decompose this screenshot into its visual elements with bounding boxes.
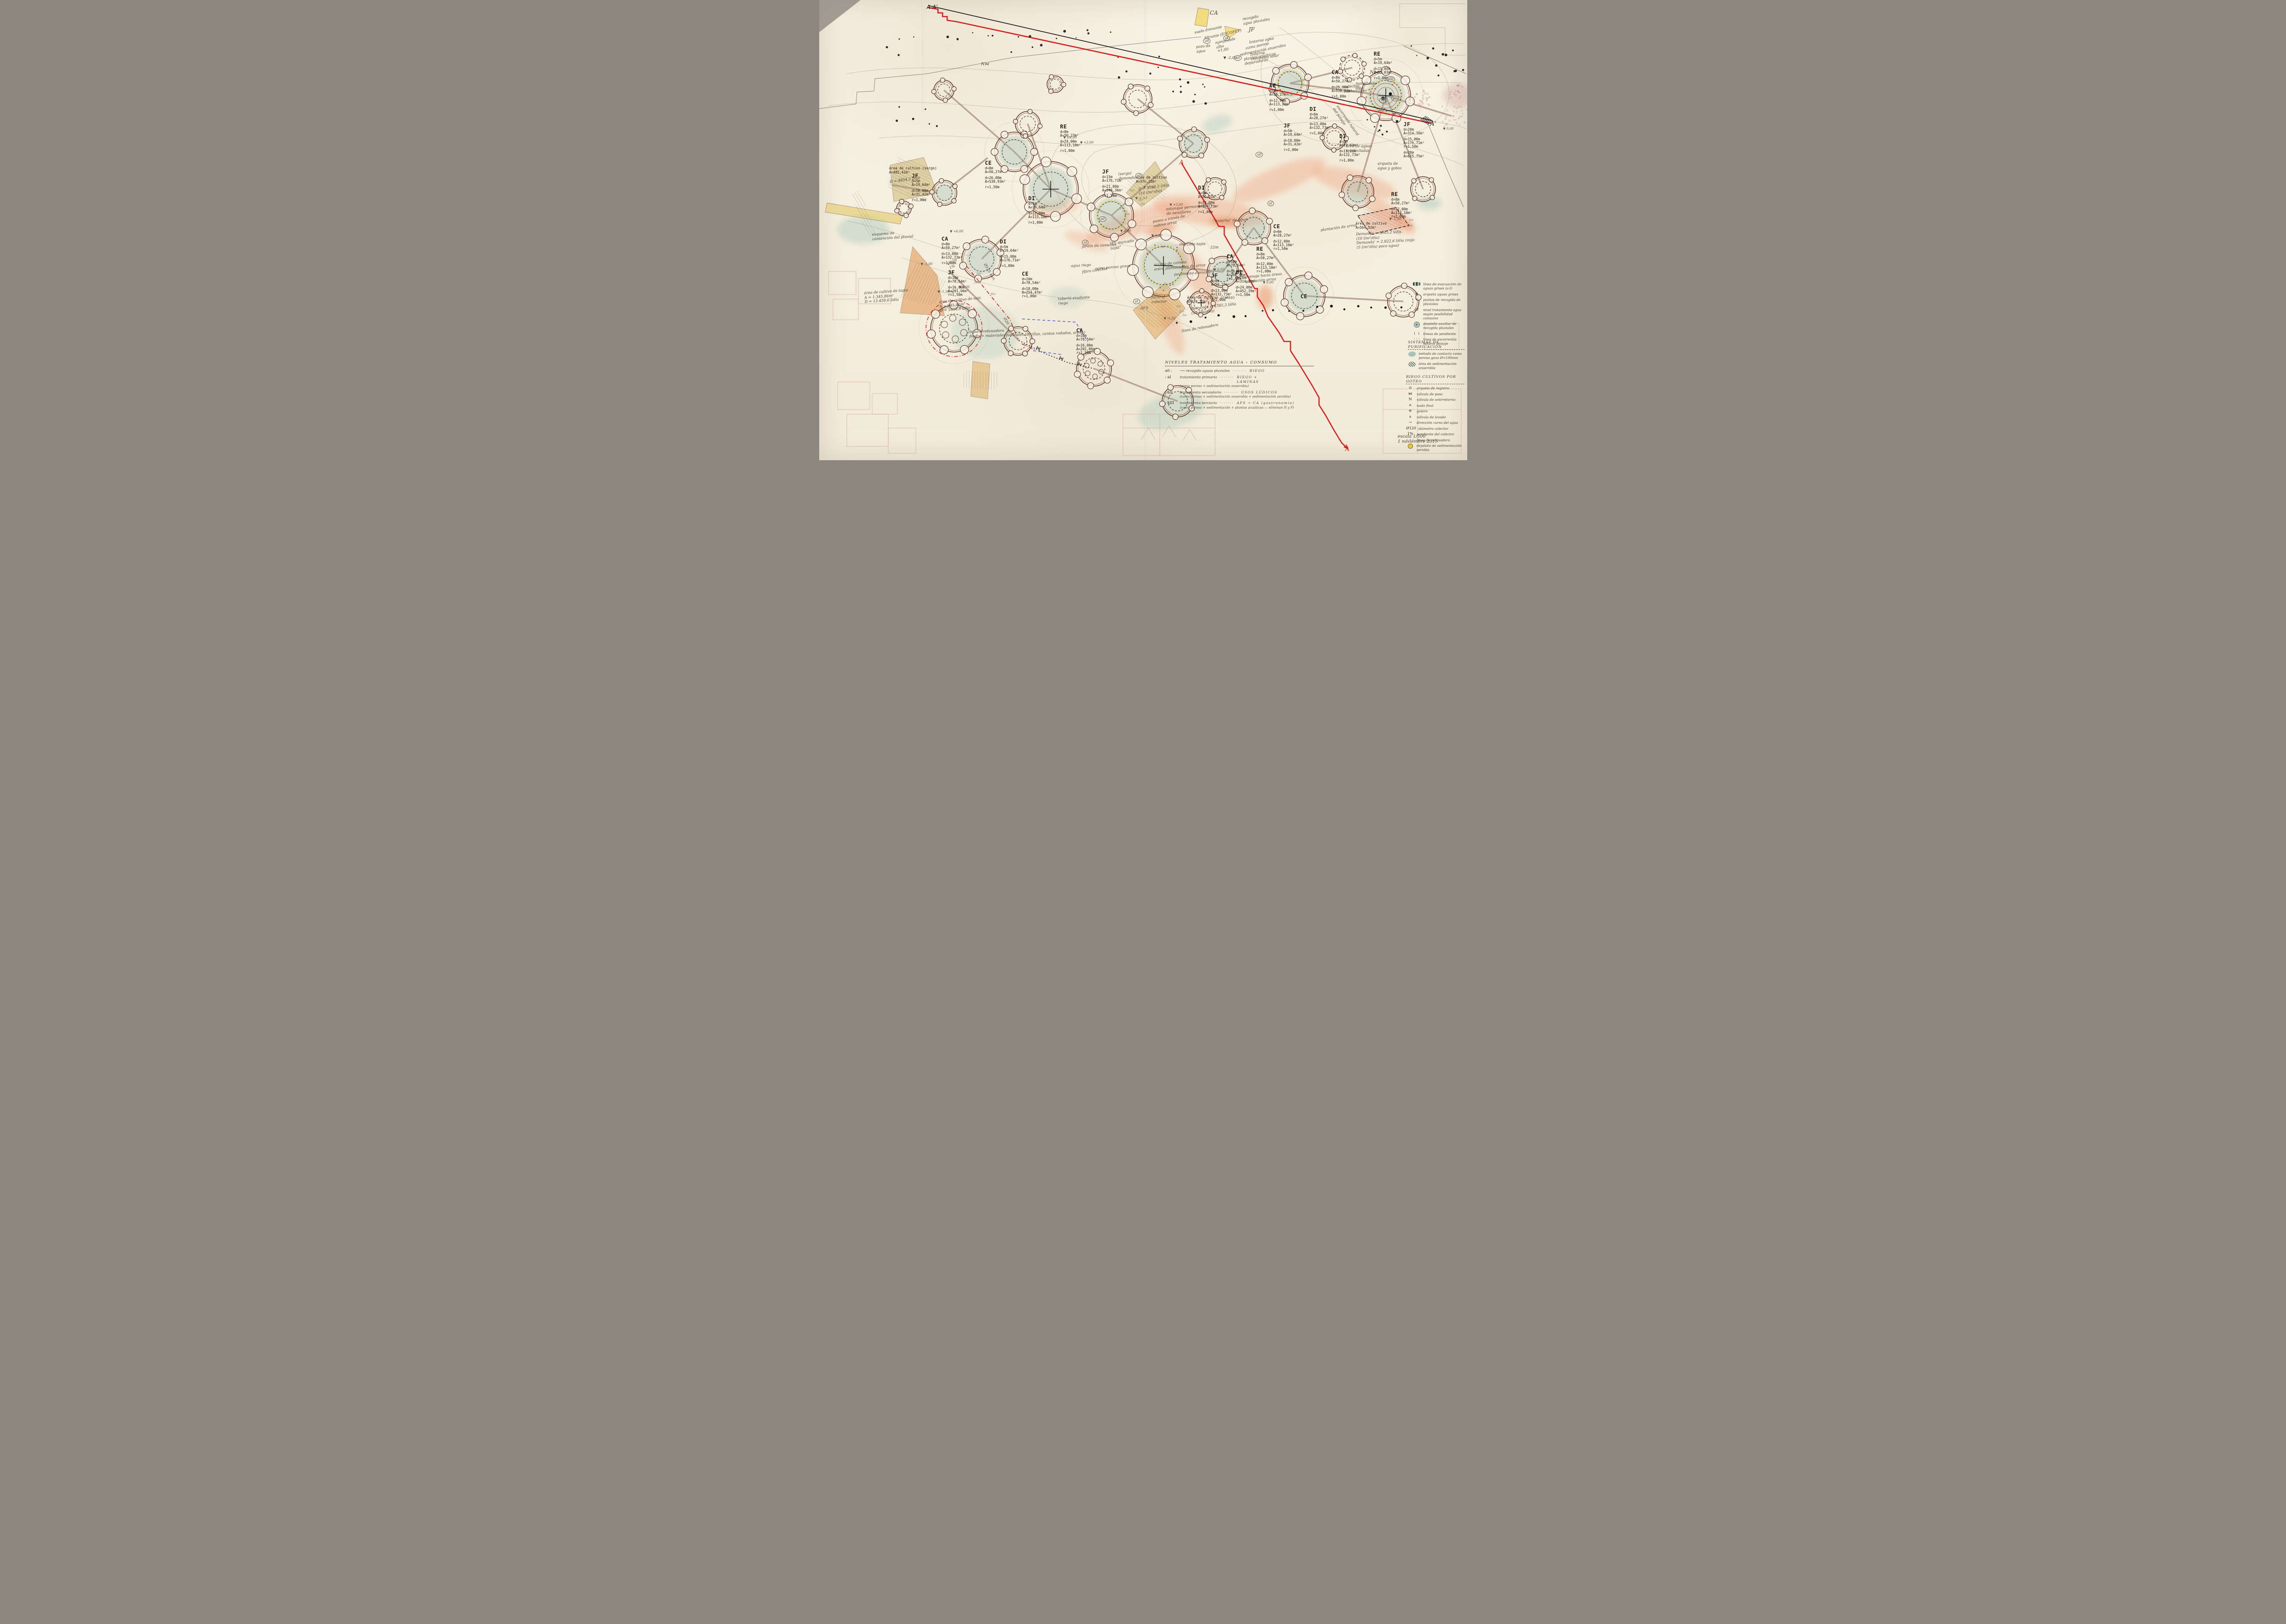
species-label-JF: JFd=5mA=19,64m²d=10,00mA=31,42m²r=1,00m [1284,123,1302,152]
treatment-row: a0 :⟶ recogida aguas pluviales·······RIE… [1165,369,1314,373]
legend-item-label: válvula de lavado [1417,415,1446,419]
hand-note: pavimento drenante [1174,270,1212,277]
legend-item-label: arqueta aguas grises [1423,292,1458,296]
drip-symbol-icon: 1% [1406,432,1414,436]
elevation-mark: ▼ 0,00 [1443,127,1453,131]
dimension-label: 3m [1138,198,1143,202]
legend-item-label: arqueta de registro [1417,386,1449,390]
legend-item: aInivel tratamiento agua según posibilid… [1412,308,1464,320]
hand-note: Demanda = 5645,2 l/día (10 l/m²/día) Dem… [1356,229,1415,250]
drip-symbol-icon [1406,444,1414,450]
elevation-mark: ▼ 0,00 [959,285,970,289]
hand-note: área de cultivo de tapia A = 1.345,86m² … [864,288,909,304]
hand-note: paseo a través de cultivo arroz [1152,214,1186,228]
hand-note: D = 3762,5 l/día (10 l/m²/día) [1138,183,1169,196]
legend-item: ↓ ↓líneas de pendiente [1412,332,1464,336]
species-label-RE: REd=8mA=50,27m²d=12,00mA=113,10m²r=1,00m [1391,191,1412,219]
rain-collection-icon: + [1412,298,1421,301]
elevation-mark: ▼ -1,00 [921,262,933,266]
hand-note: filtro al colector [1151,295,1167,304]
site-plan-canvas: ⋈⋈⋈ JFd=5mA=19,64m²d=10,00mA=31,42m²r=1,… [819,0,1467,460]
legend-item: depósito de sedimentación aerobia [1406,444,1464,452]
hand-note: A A' [926,4,938,10]
legend-item-label: nivel tratamiento agua según posibilidad… [1423,308,1464,320]
treatment-tag-aII: aII [1204,203,1212,209]
legend-item-label: nudo final [1417,404,1433,408]
elevation-mark: ▼ +4,00 [1063,136,1076,139]
drip-symbol-icon: ⋈ [1406,392,1414,396]
porous-bed-icon [1408,352,1416,358]
treatment-row: : aIIItratamiento terciario·······AFS → … [1165,401,1314,410]
legend-drip-title: RIEGO CULTIVOS POR GOTEO [1406,375,1464,384]
legend-item-label: método de contacto cama porosa gava Ø=10… [1418,352,1464,360]
species-code: RE [1374,51,1393,57]
species-code: JF [1211,273,1232,279]
drip-symbol-icon: ⊙ [1406,386,1414,390]
elevation-mark: ▼ -1,50 [1389,217,1401,221]
treatment-tag-aIII: aIII [1386,76,1395,82]
treatment-levels-table: NIVELES TRATAMIENTO AGUA – CONSUMO a0 :⟶… [1165,360,1314,412]
hand-note: Demanda = 4785,3 l/día (10 l/m²/día) [1191,302,1237,315]
legend-item: 1%pendiente del colector [1406,432,1464,436]
hand-note: A' [1430,121,1436,128]
treatment-tag-aIII: aIII [1391,96,1401,101]
paper-fold [1144,0,1146,460]
legend-item-label: línea de evacuación de aguas grises (a-I… [1423,282,1464,290]
treatment-row: : aIItratamiento secundario·······USOS L… [1165,390,1314,399]
legend-item-label: depósito auxiliar de recogida pluviales [1423,322,1464,330]
species-code: CA [1227,254,1247,260]
hand-note: "linterna" de agua [1213,217,1247,223]
elevation-mark: ▼ 0,00 [1214,268,1224,272]
treatment-tag-a0: a0 [1203,38,1210,44]
species-label-CE: CEd=10mA=78,54m²d=18,00mA=254,47m²r=1,00… [1022,271,1042,299]
species-code: RE [1391,191,1412,197]
species-code: CE [1269,83,1290,89]
dimension-label: 8m [991,292,996,296]
drip-symbol-icon: ⊖ [1406,409,1414,413]
hand-note: JF [1249,26,1255,33]
legend-item: – – –línea de rebosadero [1406,438,1464,442]
dimension-label: 3m [1182,313,1187,317]
hand-note: Ø20 [1002,317,1010,325]
greywater-manhole-icon: ⊗ [1412,292,1421,296]
elevation-mark: ▼ +2,00 [1080,141,1094,144]
hand-note: N⋈ [1370,70,1378,75]
legend-item: ⋈válvula de paso [1406,392,1464,396]
species-code: DI [1198,185,1219,191]
field-note: área de cultivo (sorgo) A=485,42m² [889,167,937,174]
dimension-label: 3m [1409,218,1414,222]
species-label-DI: DId=5mA=19,64m²d=15,00mA=176,71m²r=1,00m [1000,239,1020,268]
greywater-line-icon [1412,282,1421,287]
hand-note: A [1179,159,1183,167]
dimension-label: 2m [1125,212,1130,216]
treatment-tag-aII: aII [1379,98,1387,103]
species-code: RE [1060,124,1081,130]
species-code: CE [985,160,1006,166]
legend-item: ∧válvula de lavado [1406,415,1464,419]
legend-item: ⊗arqueta aguas grises [1412,292,1464,296]
species-label-CE: CEd=8mA=50,27m²d=26,00mA=530,93m²r=1,50m [985,160,1006,190]
legend-item: área de sedimentación anaerobia [1408,362,1464,370]
hand-note: Ø125 vari. [983,263,996,282]
drip-symbol-icon: × [1406,404,1414,407]
species-code: JF [1284,123,1302,129]
species-label-DI: DId=6mA=28,27m²d=13,00mA=132,73m²r=1,00m [1309,106,1330,136]
dimension-label: 20m [974,281,981,284]
species-label-CE: CEd=8mA=50,27m²d=12,00mA=113,10m²r=1,00m [1269,83,1290,112]
hand-note: "EL mercado tapiz" [1110,238,1135,250]
legend-item-label: área de sedimentación anaerobia [1418,362,1464,370]
elevation-mark: ▼ +2,00 [1169,203,1183,207]
legend-item-label: gotero [1417,409,1428,413]
species-code: CE [1301,294,1308,300]
species-code: CA [1331,69,1352,75]
legend-item-label: líneas de pendiente [1423,332,1456,336]
hand-note: mercado tapiz [1179,242,1206,247]
hand-note: línea de rebosadero [1181,323,1218,333]
legend-item: línea de evacuación de aguas grises (a-I… [1412,282,1464,290]
drip-symbol-icon: – – – [1406,438,1414,442]
elevation-mark: ▼ -1,50 [1164,317,1176,320]
treatment-tag-a0: a0 [1099,216,1106,222]
species-code: DI [1000,239,1020,245]
hand-note: N⋈ [981,62,989,67]
legend-item-label: válvula de antirretorno [1417,398,1455,402]
hand-note: A [1345,446,1349,453]
hand-note: 22m [1210,245,1219,250]
dimension-label: 3m [1176,305,1181,308]
paper-seam [922,0,924,113]
dimension-label: 3m [977,272,982,275]
hand-note: tubería exudante riego [1058,295,1090,306]
species-code: JF [1404,121,1424,127]
legend-item-label: dirección curso del agua [1417,421,1458,425]
elevation-mark: ▼ -1,50 m [938,290,953,294]
field-note: área de cultivo A=564,52m² [1355,222,1387,230]
species-label-CE: CE [1301,294,1308,300]
species-code: JF [948,270,969,276]
dimension-label: 3m [1179,310,1184,313]
auxiliary-deposit-icon: + [1412,322,1421,328]
treatment-tag-a0: a0 [1256,152,1263,157]
legend-item: →dirección curso del agua [1406,421,1464,425]
annotation-layer: JFd=5mA=19,64m²d=10,00mA=31,42m²r=1,00mC… [819,0,1467,460]
species-code: DI [1028,196,1049,202]
hand-note: arqueta de agua y goteo [1377,162,1401,170]
slope-lines-icon: ↓ ↓ [1412,332,1421,335]
legend-item-label: depósito de sedimentación aerobia [1417,444,1464,452]
species-label-RE: REd=8mA=50,27m²d=12,00mA=113,10m²r=1,00m [1256,246,1277,274]
elevation-mark: ▼ 0,00 [1263,281,1273,284]
legend-item: ×nudo final [1406,404,1464,408]
treatment-tag-aI: aI [1133,299,1140,304]
dimension-label: 3m [1408,224,1413,227]
legend-item: ⊙arqueta de registro [1406,386,1464,390]
species-code: RE [1256,246,1277,252]
hand-note: acceso de camino entre plantaciones de a… [1154,258,1206,272]
hand-note: recogida agua pluviales [1242,12,1270,26]
hand-note: plantación de arroz [1320,223,1357,232]
legend-purification-title: SISTEMAS DE PURIFICACIÓN [1408,340,1464,350]
legend-purification: SISTEMAS DE PURIFICACIÓN método de conta… [1408,340,1464,371]
drip-symbol-icon: N [1406,398,1414,401]
treatment-tag-aII: aII [1234,55,1242,61]
legend-item-label: pendiente del colector [1417,432,1454,436]
species-label-JF: JFd=20mA=314,16m²d=15,00mA=176,71m²r=1,5… [1404,121,1424,159]
drip-symbol-icon: Ø120 [1406,427,1416,430]
hand-note: colector subterráneo [1344,84,1367,94]
legend-item: Ø120diámetro colector [1406,427,1464,431]
hand-note: pozo de agua [1196,44,1211,54]
treatment-tag-aI: aI [1267,201,1274,206]
elevation-mark: ▼ 4,00 [1120,229,1131,233]
species-code: CA [942,236,962,242]
hand-note: área de cultivo de soja A = 545,86m² D =… [939,295,982,313]
elevation-mark: ▼ 0,00 [1152,234,1162,237]
legend-item-label: diámetro colector [1418,427,1448,431]
legend-item-label: válvula de paso [1417,392,1442,396]
legend-drip: RIEGO CULTIVOS POR GOTEO ⊙arqueta de reg… [1406,375,1464,454]
hand-note: agua riego [1071,263,1091,268]
treatment-level-icon: aI [1412,308,1421,312]
legend-item: ⊖gotero [1406,409,1464,413]
drip-symbol-icon: ∧ [1406,415,1414,419]
elevation-mark: ▼ +6,00 [950,230,963,233]
treatment-levels-title: NIVELES TRATAMIENTO AGUA – CONSUMO [1165,360,1314,366]
species-code: DI [1309,106,1330,112]
anaerobic-sedimentation-icon [1408,362,1416,368]
species-code: CE [1022,271,1042,277]
legend-item-label: puntos de recogida de pluviales [1423,298,1464,306]
legend-item: método de contacto cama porosa gava Ø=10… [1408,352,1464,360]
treatment-row: : aItratamiento primario·······RIEGO + L… [1165,375,1314,388]
legend-item: +depósito auxiliar de recogida pluviales [1412,322,1464,330]
legend-water: línea de evacuación de aguas grises (a-I… [1412,282,1464,347]
dimension-label: 3m [1129,189,1134,192]
hand-note: laguna rebosadero fondo = materiales nat… [969,326,1085,339]
species-label-DI: DId=5mA=19,64m²d=12,00mA=113,10m²r=1,00m [1028,196,1049,225]
hand-note: CA [1210,10,1218,16]
hand-note: área de aguas recolectadas [1346,144,1372,153]
legend-item: +puntos de recogida de pluviales [1412,298,1464,306]
species-code: CE [1273,224,1294,230]
legend-item-label: línea de rebosadero [1417,438,1450,442]
legend-item: Nválvula de antirretorno [1406,398,1464,402]
drip-symbol-icon: → [1406,421,1414,424]
hand-note: esquema de contención del pluvial [872,230,913,241]
